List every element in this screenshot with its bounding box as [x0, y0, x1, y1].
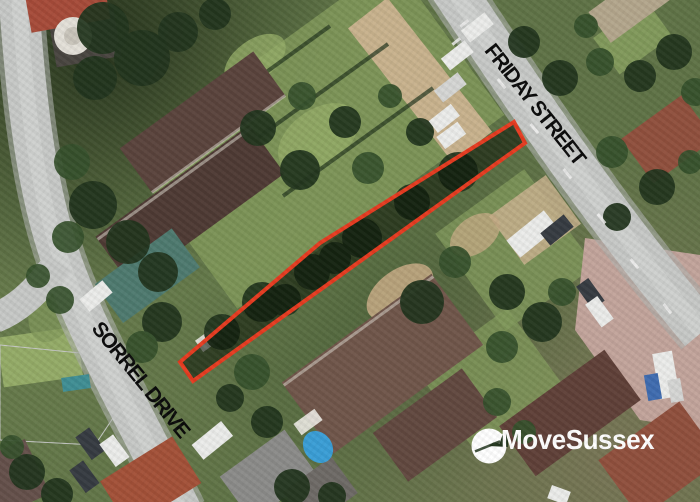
tree [352, 152, 384, 184]
tree [73, 56, 117, 100]
tree [542, 60, 578, 96]
tree [216, 384, 244, 412]
tree [240, 110, 276, 146]
tree [280, 150, 320, 190]
tree [486, 331, 518, 363]
van [192, 421, 233, 460]
tree [52, 221, 84, 253]
tree [329, 106, 361, 138]
tree [138, 252, 178, 292]
tree [522, 302, 562, 342]
tree [288, 82, 316, 110]
tree [656, 34, 692, 70]
tree [9, 454, 45, 490]
tree [624, 60, 656, 92]
aerial-photo: FRIDAY STREET SORREL DRIVE MoveSussex [0, 0, 700, 502]
tree [548, 278, 576, 306]
tree [46, 286, 74, 314]
tree [439, 246, 471, 278]
tree [378, 84, 402, 108]
tree [158, 12, 198, 52]
tree [54, 144, 90, 180]
tree [586, 48, 614, 76]
movesussex-logo-text: MoveSussex [501, 424, 654, 456]
tree [508, 26, 540, 58]
tree [251, 406, 283, 438]
tree [199, 0, 231, 30]
van [547, 485, 571, 502]
tree [41, 478, 73, 502]
movesussex-logo: MoveSussex [468, 422, 678, 468]
tree [574, 14, 598, 38]
tree [69, 181, 117, 229]
tree [234, 354, 270, 390]
tree [26, 264, 50, 288]
tree [400, 280, 444, 324]
tree [596, 136, 628, 168]
tree [0, 435, 24, 459]
tree [489, 274, 525, 310]
tree [106, 220, 150, 264]
tree [603, 203, 631, 231]
tree [483, 388, 511, 416]
tree [639, 169, 675, 205]
car [69, 460, 99, 493]
